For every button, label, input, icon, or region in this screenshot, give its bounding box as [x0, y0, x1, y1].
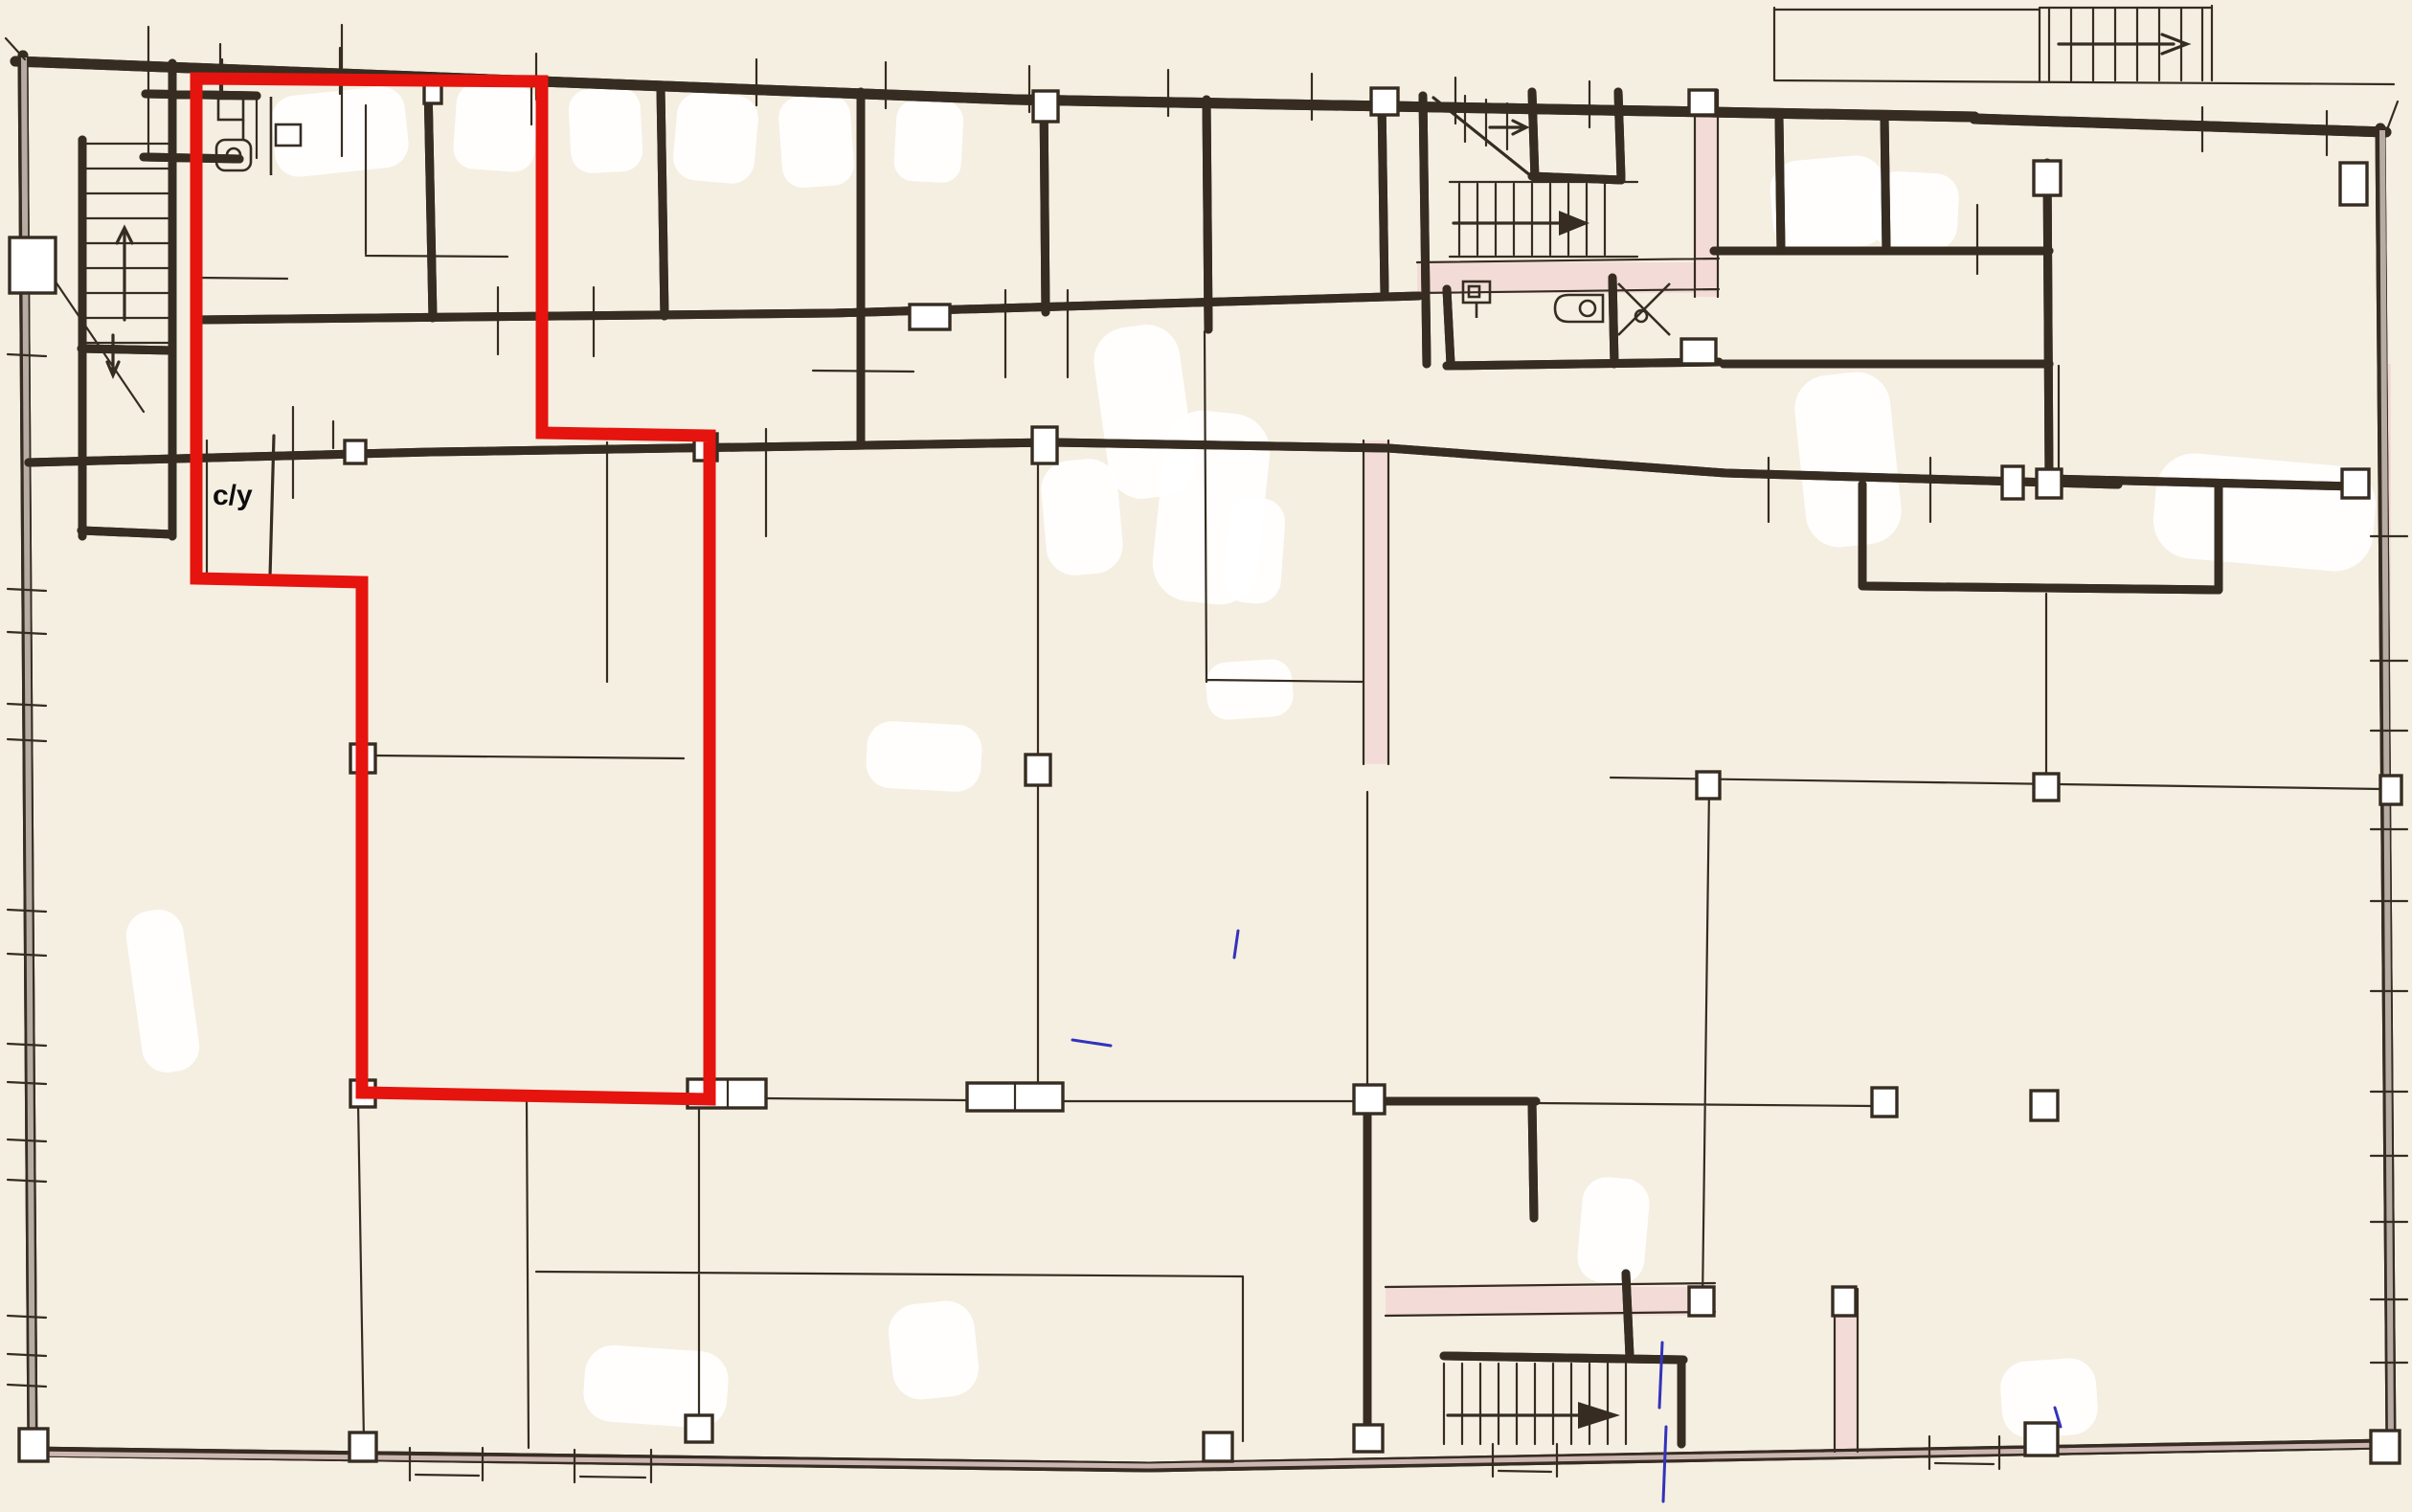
door-opening: [910, 305, 950, 329]
door-opening: [10, 237, 56, 293]
floor-plan-page: с/у: [0, 0, 2412, 1512]
cy-room-label: с/у: [213, 480, 253, 511]
floor-plan-drawing: с/у: [0, 0, 2412, 1512]
